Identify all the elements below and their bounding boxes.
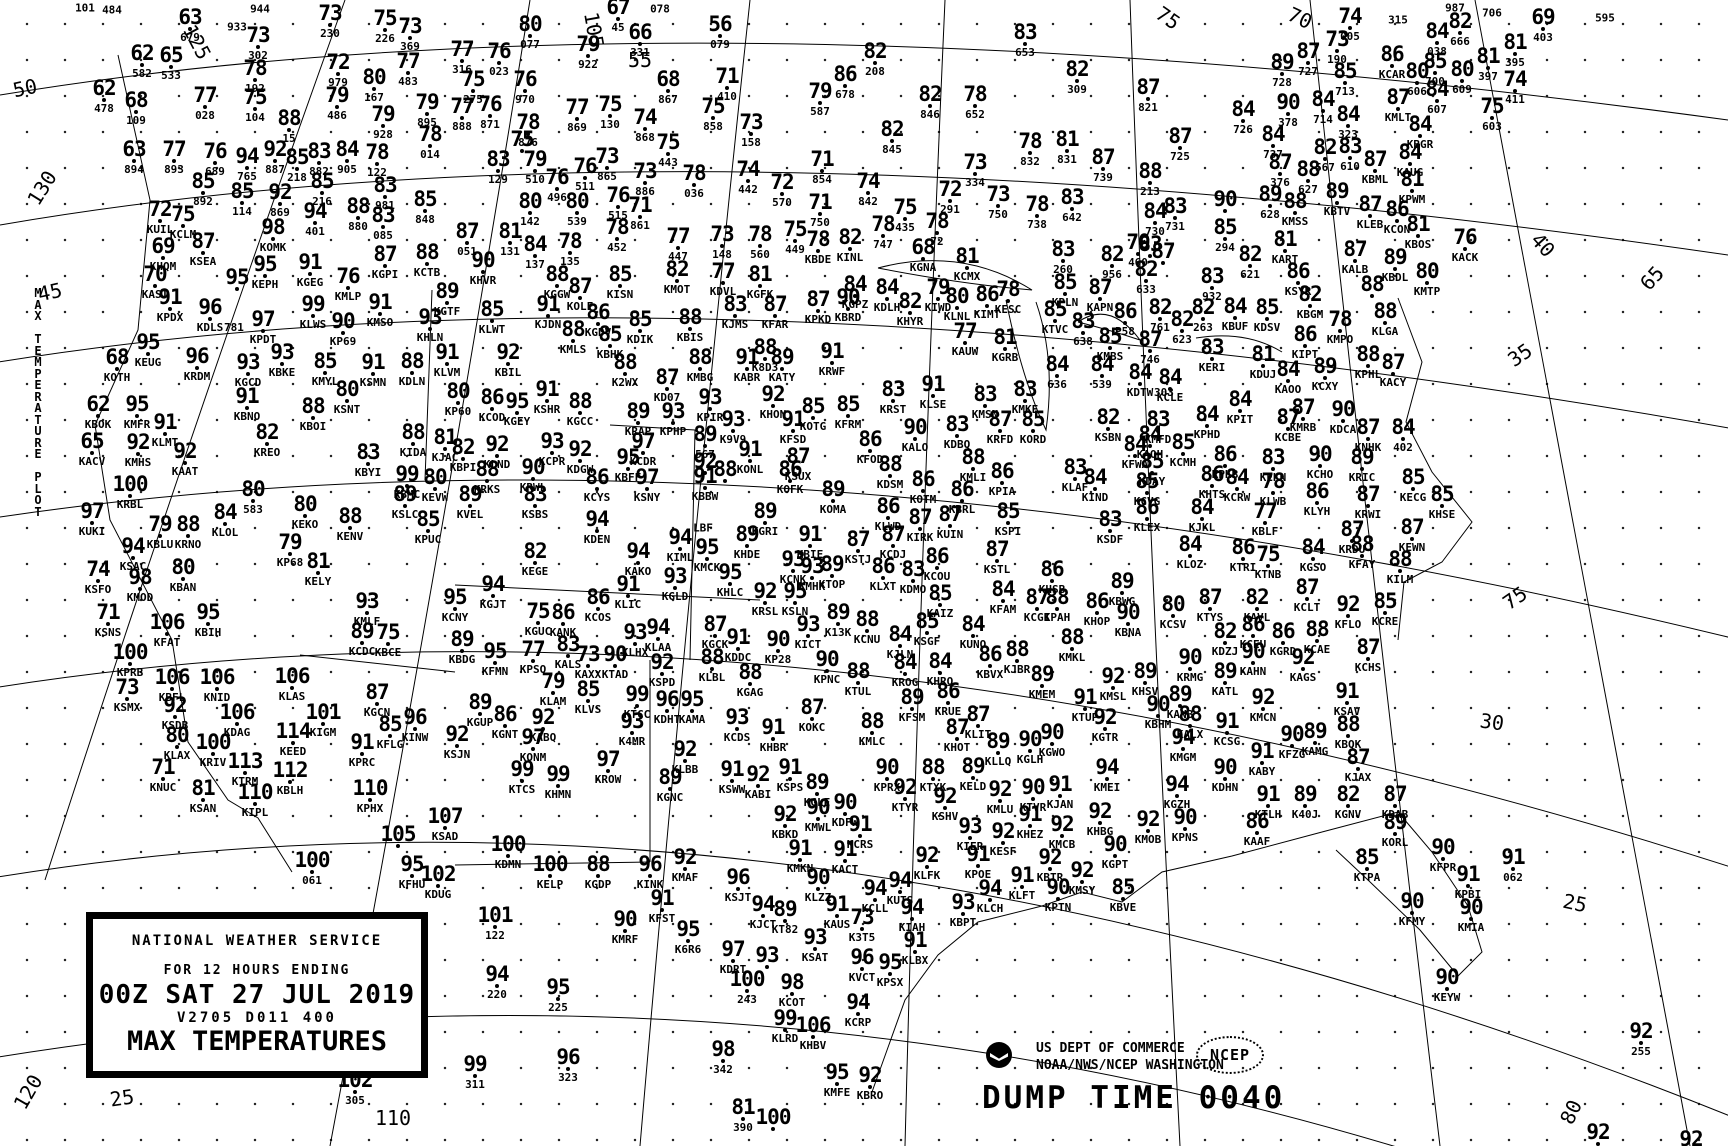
station-temp: 85: [915, 609, 938, 633]
station-id: KLYH: [1304, 505, 1331, 518]
station-temp: 82: [1191, 295, 1214, 319]
station-temp: 92: [568, 437, 591, 461]
station-temp: 88: [586, 852, 609, 876]
station-temp: 85: [480, 297, 503, 321]
station-temp: 92: [1088, 799, 1111, 823]
station-temp: 84: [1425, 77, 1448, 101]
station-temp: 78: [871, 212, 894, 236]
station-temp: 88: [277, 106, 300, 130]
station-temp: 87: [988, 407, 1011, 431]
station-number: 305: [345, 1094, 365, 1107]
station-id: KHOP: [1084, 615, 1111, 628]
station-temp: 78: [558, 229, 581, 253]
station-id: KSTJ: [845, 553, 872, 566]
station-temp: 75: [701, 94, 724, 118]
station-id: KDIK: [627, 333, 654, 346]
station-temp: 95: [680, 687, 703, 711]
station-id: K3T5: [849, 931, 876, 944]
station-id: KDLN: [399, 375, 426, 388]
station-temp: 101: [306, 700, 341, 724]
station-temp: 96: [403, 705, 426, 729]
station-temp: 73: [710, 222, 733, 246]
station-temp: 95: [225, 265, 248, 289]
station-id: KMTP: [1414, 285, 1441, 298]
station-temp: 92: [445, 722, 468, 746]
station-temp: 92: [1136, 807, 1159, 831]
station-number: 725: [1170, 150, 1190, 163]
station-id: KCNY: [442, 611, 469, 624]
station-number: 666: [1450, 35, 1470, 48]
station-id: KEVW: [422, 491, 449, 504]
station-id: KSTL: [984, 563, 1011, 576]
station-temp: 88: [346, 194, 369, 218]
station-temp: 93: [540, 429, 563, 453]
station-id: KBCE: [375, 646, 402, 659]
station-id: KVCT: [849, 971, 876, 984]
station-id: KDMN: [495, 858, 522, 871]
station-temp: 84: [961, 612, 984, 636]
station-temp: 92: [1586, 1120, 1609, 1144]
station-temp: 85: [1140, 449, 1163, 473]
station-temp: 85: [416, 507, 439, 531]
station-id: KBGM: [1297, 308, 1324, 321]
station-temp: 73: [318, 1, 341, 25]
station-temp: 100: [113, 640, 148, 664]
station-temp: 87: [1136, 75, 1159, 99]
station-temp: 82: [1134, 257, 1157, 281]
station-temp: 83: [1163, 194, 1186, 218]
station-temp: 79: [415, 90, 438, 114]
station-temp: 87: [1400, 515, 1423, 539]
station-temp: 88: [1296, 157, 1319, 181]
station-number: 610: [1340, 160, 1360, 173]
station-id: KBPI: [450, 461, 477, 474]
station-temp: 85: [191, 169, 214, 193]
station-temp: 78: [1025, 192, 1048, 216]
station-temp: 91: [650, 886, 673, 910]
station-temp: 94: [1171, 725, 1194, 749]
station-temp: 92: [761, 382, 784, 406]
station-temp: 83: [1200, 264, 1223, 288]
station-id: KGRB: [992, 351, 1019, 364]
station-temp: 80: [423, 465, 446, 489]
station-temp: 86: [833, 62, 856, 86]
station-temp: 87: [1381, 350, 1404, 374]
station-id: KSNY: [634, 491, 661, 504]
station-number: 922: [578, 58, 598, 71]
station-temp: 78: [418, 122, 441, 146]
grid-label: 55: [628, 48, 652, 72]
station-number: 846: [920, 108, 940, 121]
station-temp: 75: [461, 67, 484, 91]
station-id: KOKC: [799, 721, 826, 734]
station-id: KALO: [902, 441, 929, 454]
station-temp: 100: [756, 1105, 791, 1129]
station-id: KHMN: [545, 788, 572, 801]
station-id: KEUG: [135, 356, 162, 369]
station-temp: 80: [335, 377, 358, 401]
station-temp: 91: [921, 372, 944, 396]
station-number: 894: [124, 163, 144, 176]
station-temp: 91: [825, 892, 848, 916]
station-id: KHBR: [760, 741, 787, 754]
station-temp: 82: [863, 39, 886, 63]
station-temp: 84: [1128, 360, 1151, 384]
station-temp: 87: [763, 292, 786, 316]
grid-label: 110: [375, 1106, 411, 1130]
station-temp: 83: [1013, 377, 1036, 401]
station-id: KFAT: [154, 636, 181, 649]
station-id: KPNC: [814, 673, 841, 686]
station-number: 738: [1027, 218, 1047, 231]
station-temp: 91: [1048, 772, 1071, 796]
station-temp: 92: [915, 843, 938, 867]
station-temp: 90: [1103, 832, 1126, 856]
station-number: 892: [193, 195, 213, 208]
station-id: KFLG: [377, 738, 404, 751]
station-id: KCLT: [1294, 601, 1321, 614]
station-id: KBRD: [835, 311, 862, 324]
station-temp: 100: [491, 832, 526, 856]
station-id: KCHS: [1355, 661, 1382, 674]
station-temp: 91: [298, 250, 321, 274]
station-temp: 81: [1476, 44, 1499, 68]
station-id: KLCH: [977, 902, 1004, 915]
station-temp: 92: [163, 693, 186, 717]
station-temp: 88: [878, 452, 901, 476]
station-temp: 78: [996, 277, 1019, 301]
station-temp: 95: [695, 535, 718, 559]
station-number: 539: [567, 215, 587, 228]
station-temp: 95: [783, 579, 806, 603]
station-number: 104: [245, 111, 265, 124]
station-number: 539: [1092, 378, 1112, 391]
station-temp: 88: [713, 457, 736, 481]
station-temp: 92: [268, 180, 291, 204]
station-number: 061: [302, 874, 322, 887]
station-id: KCAR: [1379, 68, 1406, 81]
station-temp: 86: [1200, 462, 1223, 486]
station-id: KCDS: [724, 731, 751, 744]
station-id: KGNT: [492, 728, 519, 741]
station-temp: 85: [608, 262, 631, 286]
station-temp: 83: [881, 377, 904, 401]
station-number: 220: [487, 988, 507, 1001]
station-id: KBUF: [1222, 320, 1249, 333]
station-temp: 75: [243, 85, 266, 109]
station-number: 832: [1020, 155, 1040, 168]
station-temp: 87: [365, 680, 388, 704]
station-id: KAUW: [952, 345, 979, 358]
station-temp: 110: [353, 776, 388, 800]
station-temp: 86: [911, 467, 934, 491]
station-temp: 80: [1450, 57, 1473, 81]
station-temp: 85: [1171, 430, 1194, 454]
station-number: 510: [525, 173, 545, 186]
station-id: KFAY: [1349, 558, 1376, 571]
station-id: KGNC: [657, 791, 684, 804]
station-number: 888: [452, 120, 472, 133]
station-number: 970: [515, 93, 535, 106]
station-temp: 100: [196, 730, 231, 754]
station-id: KABY: [1249, 765, 1276, 778]
station-number: 867: [658, 93, 678, 106]
station-temp: 88: [961, 445, 984, 469]
grid-label: 45: [36, 278, 65, 306]
station-temp: 83: [901, 557, 924, 581]
station-temp: 87: [1138, 327, 1161, 351]
station-temp: 85: [1111, 875, 1134, 899]
station-temp: 86: [936, 679, 959, 703]
station-temp: 89: [1303, 719, 1326, 743]
station-temp: 92: [858, 1063, 881, 1087]
station-temp: 90: [1400, 889, 1423, 913]
station-id: KCLE: [1157, 391, 1184, 404]
station-id: KGSO: [1300, 561, 1327, 574]
station-temp: 95: [718, 560, 741, 584]
station-id: KP68: [277, 556, 304, 569]
station-id: KCBE: [1275, 431, 1302, 444]
station-temp: 83: [1051, 237, 1074, 261]
station-id: KEWN: [1399, 541, 1426, 554]
small-label: 706: [1482, 7, 1502, 20]
station-temp: 82: [1245, 585, 1268, 609]
station-temp: 80: [241, 477, 264, 501]
station-id: KSNS: [95, 626, 122, 639]
station-temp: 89: [1030, 662, 1053, 686]
station-id: KSGF: [914, 635, 941, 648]
station-temp: 96: [198, 295, 221, 319]
station-id: KMCK: [694, 561, 721, 574]
station-temp: 84: [1223, 294, 1246, 318]
station-temp: 84: [1391, 415, 1414, 439]
station-temp: 93: [951, 890, 974, 914]
station-temp: 73: [633, 159, 656, 183]
station-id: KFAR: [762, 318, 789, 331]
station-temp: 87: [945, 715, 968, 739]
station-id: KOFK: [777, 483, 804, 496]
station-temp: 82: [451, 435, 474, 459]
station-id: KTOP: [819, 578, 846, 591]
station-id: KMOD: [127, 591, 154, 604]
station-temp: 93: [698, 385, 721, 409]
station-id: KPIA: [989, 485, 1016, 498]
station-number: 213: [1140, 185, 1160, 198]
station-id: KDSM: [877, 478, 904, 491]
station-temp: 88: [613, 350, 636, 374]
station-temp: 65: [80, 429, 103, 453]
station-temp: 91: [536, 292, 559, 316]
station-temp: 106: [220, 700, 255, 724]
station-temp: 67: [606, 0, 629, 19]
station-temp: 86: [871, 554, 894, 578]
station-temp: 79: [523, 147, 546, 171]
station-id: KSAT: [802, 951, 829, 964]
station-id: KGCN: [364, 706, 391, 719]
station-temp: 86: [990, 459, 1013, 483]
station-temp: 89: [1213, 659, 1236, 683]
station-temp: 75: [376, 620, 399, 644]
station-id: KPTN: [1045, 901, 1072, 914]
station-temp: 85: [310, 169, 333, 193]
station-number: 452: [607, 241, 627, 254]
station-temp: 88: [415, 240, 438, 264]
station-id: KFLO: [1335, 618, 1362, 631]
station-temp: 90: [903, 415, 926, 439]
station-id: KEED: [280, 745, 307, 758]
station-id: KSMN: [360, 376, 387, 389]
station-temp: 88: [545, 262, 568, 286]
station-id: KATL: [1212, 685, 1239, 698]
station-temp: 86: [978, 642, 1001, 666]
station-temp: 81: [191, 776, 214, 800]
station-temp: 86: [1135, 495, 1158, 519]
station-number: 845: [882, 143, 902, 156]
station-id: KP28: [765, 653, 792, 666]
station-temp: 78: [365, 140, 388, 164]
station-temp: 63: [122, 137, 145, 161]
station-id: KGDP: [585, 878, 612, 891]
station-id: KMLC: [859, 735, 886, 748]
station-temp: 76: [487, 39, 510, 63]
station-id: KREO: [254, 446, 281, 459]
station-temp: 83: [1013, 20, 1036, 44]
station-temp: 93: [725, 705, 748, 729]
station-dot: [396, 844, 400, 848]
station-temp: 93: [236, 350, 259, 374]
station-temp: 88: [855, 607, 878, 631]
station-temp: 91: [820, 339, 843, 363]
station-id: K6R6: [675, 943, 702, 956]
station-id: KLEX: [1134, 521, 1161, 534]
station-id: KSEA: [190, 255, 217, 268]
station-number: 652: [965, 108, 985, 121]
station-id: KMIA: [1458, 921, 1485, 934]
station-temp: 94: [646, 615, 669, 639]
station-number: 928: [373, 128, 393, 141]
station-id: KFAM: [990, 603, 1017, 616]
station-number: 905: [337, 163, 357, 176]
station-id: KBML: [1362, 173, 1389, 186]
station-temp: 86: [480, 385, 503, 409]
station-id: K4MR: [619, 735, 646, 748]
station-temp: 96: [638, 852, 661, 876]
station-id: KLEB: [1357, 218, 1384, 231]
station-temp: 90: [613, 907, 636, 931]
station-id: KMSO: [367, 316, 394, 329]
station-number: 142: [520, 215, 540, 228]
station-temp: 89: [900, 685, 923, 709]
station-temp: 68: [124, 88, 147, 112]
station-id: KGLH: [1017, 753, 1044, 766]
station-temp: 91: [435, 340, 458, 364]
station-temp: 77: [521, 637, 544, 661]
station-id: KOMA: [820, 503, 847, 516]
station-temp: 89: [468, 690, 491, 714]
station-temp: 85: [230, 179, 253, 203]
station-temp: 82: [1100, 242, 1123, 266]
station-temp: 85: [1333, 59, 1356, 83]
station-temp: 91: [1250, 739, 1273, 763]
station-temp: 84: [335, 137, 358, 161]
station-number: 478: [94, 102, 114, 115]
station-temp: 90: [1146, 692, 1169, 716]
station-temp: 91: [761, 715, 784, 739]
station-temp: 86: [876, 494, 899, 518]
station-id: KDCA: [1330, 423, 1357, 436]
station-temp: 99: [773, 1006, 796, 1030]
station-temp: 91: [361, 350, 384, 374]
station-id: KVEL: [457, 508, 484, 521]
station-temp: 85: [598, 322, 621, 346]
station-number: 085: [373, 229, 393, 242]
station-number: 678: [835, 88, 855, 101]
station-temp: 76: [478, 92, 501, 116]
station-temp: 89: [1110, 569, 1133, 593]
station-number: 842: [858, 195, 878, 208]
station-id: KFRM: [835, 418, 862, 431]
station-id: KMSL: [1100, 690, 1127, 703]
station-temp: 77: [396, 49, 419, 73]
station-temp: 95: [878, 950, 901, 974]
station-temp: 81: [1503, 30, 1526, 54]
station-temp: 86: [858, 427, 881, 451]
station-id: KJDN: [535, 318, 562, 331]
station-temp: 91: [903, 928, 926, 952]
station-id: KCOD: [479, 411, 506, 424]
station-temp: 94: [668, 525, 691, 549]
station-id: KMFE: [824, 1086, 851, 1099]
station-temp: 78: [925, 209, 948, 233]
station-temp: 76: [336, 264, 359, 288]
station-id: KTPA: [1354, 871, 1381, 884]
station-temp: 92: [1679, 1127, 1702, 1146]
station-temp: 87: [1358, 192, 1381, 216]
station-temp: 88: [688, 345, 711, 369]
station-temp: 85: [285, 145, 308, 169]
station-id: KCXY: [1312, 380, 1339, 393]
station-temp: 72: [938, 177, 961, 201]
station-number: 583: [243, 503, 263, 516]
station-temp: 69: [151, 234, 174, 258]
station-id: KAMG: [1302, 745, 1329, 758]
station-number: 582: [132, 67, 152, 80]
station-id: KP69: [330, 335, 357, 348]
station-id: KSMX: [114, 701, 141, 714]
station-number: 411: [1505, 93, 1525, 106]
station-temp: 92: [173, 439, 196, 463]
station-number: 263: [1193, 321, 1213, 334]
station-id: KMLU: [987, 803, 1014, 816]
station-temp: 89: [1383, 810, 1406, 834]
station-number: 130: [600, 118, 620, 131]
station-temp: 88: [860, 709, 883, 733]
station-temp: 84: [1178, 532, 1201, 556]
station-number: 226: [375, 32, 395, 45]
station-id: KLBX: [902, 954, 929, 967]
station-temp: 88: [738, 660, 761, 684]
station-temp: 87: [568, 274, 591, 298]
station-temp: 100: [730, 967, 765, 991]
station-temp: 72: [326, 50, 349, 74]
station-id: KMKL: [1059, 651, 1086, 664]
station-temp: 82: [1096, 405, 1119, 429]
station-temp: 71: [810, 147, 833, 171]
station-dot: [723, 479, 727, 483]
station-temp: 94: [121, 534, 144, 558]
station-number: 114: [232, 205, 252, 218]
station-temp: 94: [978, 876, 1001, 900]
